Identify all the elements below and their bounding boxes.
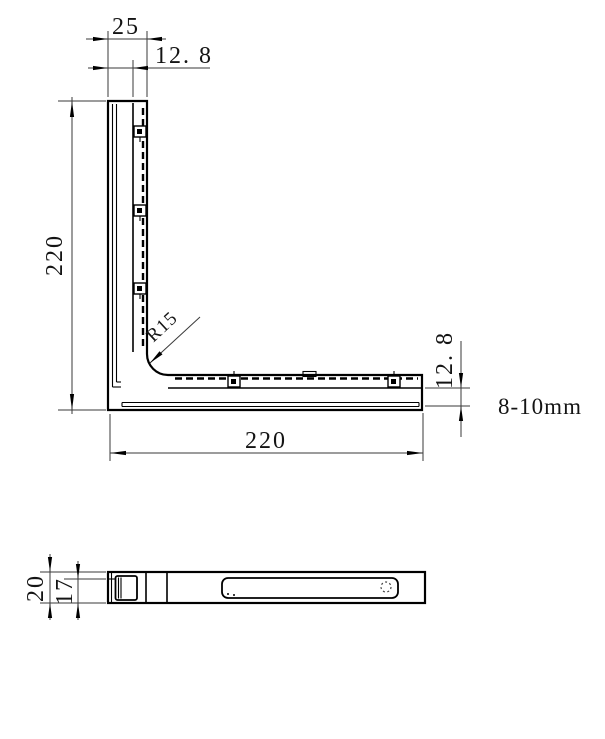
dimension-12-8-top: 12. 8 bbox=[88, 43, 213, 97]
dimension-arrow bbox=[110, 451, 126, 455]
dimension-12-8-right: 12. 8 bbox=[425, 331, 470, 437]
dimension-label-12-8-right: 12. 8 bbox=[432, 331, 458, 389]
bottom-view-bar: 20 17 bbox=[23, 554, 425, 620]
technical-drawing-canvas: 25 12. 8 220 220 bbox=[0, 0, 605, 739]
slot-hole-hidden-circle bbox=[381, 582, 391, 592]
radius-label: R15 bbox=[142, 307, 182, 346]
dimension-arrow bbox=[133, 66, 148, 70]
dimension-arrow bbox=[459, 406, 463, 421]
dimension-label-25: 25 bbox=[112, 14, 140, 40]
dimension-arrow bbox=[407, 451, 423, 455]
end-clip-block bbox=[116, 576, 138, 600]
dimension-arrow bbox=[93, 66, 108, 70]
dimension-arrow bbox=[459, 373, 463, 388]
dimension-label-17: 17 bbox=[52, 577, 78, 605]
dimension-220-left: 220 bbox=[42, 97, 106, 414]
radius-callout-r15: R15 bbox=[142, 307, 200, 363]
dimension-arrow bbox=[93, 37, 108, 41]
dimension-label-220-bottom: 220 bbox=[245, 428, 287, 454]
leader-arrow bbox=[150, 351, 163, 363]
retainer-clip bbox=[134, 126, 146, 142]
vertical-arm-thin-plate bbox=[113, 104, 122, 387]
dimension-label-220-left: 220 bbox=[42, 234, 68, 276]
retainer-clip bbox=[388, 371, 400, 387]
dimension-25: 25 bbox=[86, 14, 166, 97]
retainer-clip bbox=[228, 371, 240, 387]
bracket-outline bbox=[108, 101, 422, 410]
dimension-17: 17 bbox=[52, 561, 106, 620]
dimension-label-20: 20 bbox=[23, 574, 49, 602]
horizontal-arm-thin-plate bbox=[122, 403, 419, 407]
front-view-l-profile: 25 12. 8 220 220 bbox=[42, 14, 582, 461]
drawing-page: 25 12. 8 220 220 bbox=[0, 0, 605, 739]
slot-outline bbox=[222, 578, 398, 598]
slot-dot bbox=[233, 594, 235, 596]
dimension-arrow bbox=[147, 37, 162, 41]
dimension-arrow bbox=[70, 394, 74, 410]
dimension-220-bottom: 220 bbox=[110, 413, 423, 461]
dimension-label-12-8-top: 12. 8 bbox=[155, 43, 213, 69]
dimension-arrow bbox=[70, 101, 74, 117]
slot-dot bbox=[227, 593, 229, 595]
dimension-arrow bbox=[48, 557, 52, 572]
glass-thickness-note: 8-10mm bbox=[498, 394, 582, 419]
